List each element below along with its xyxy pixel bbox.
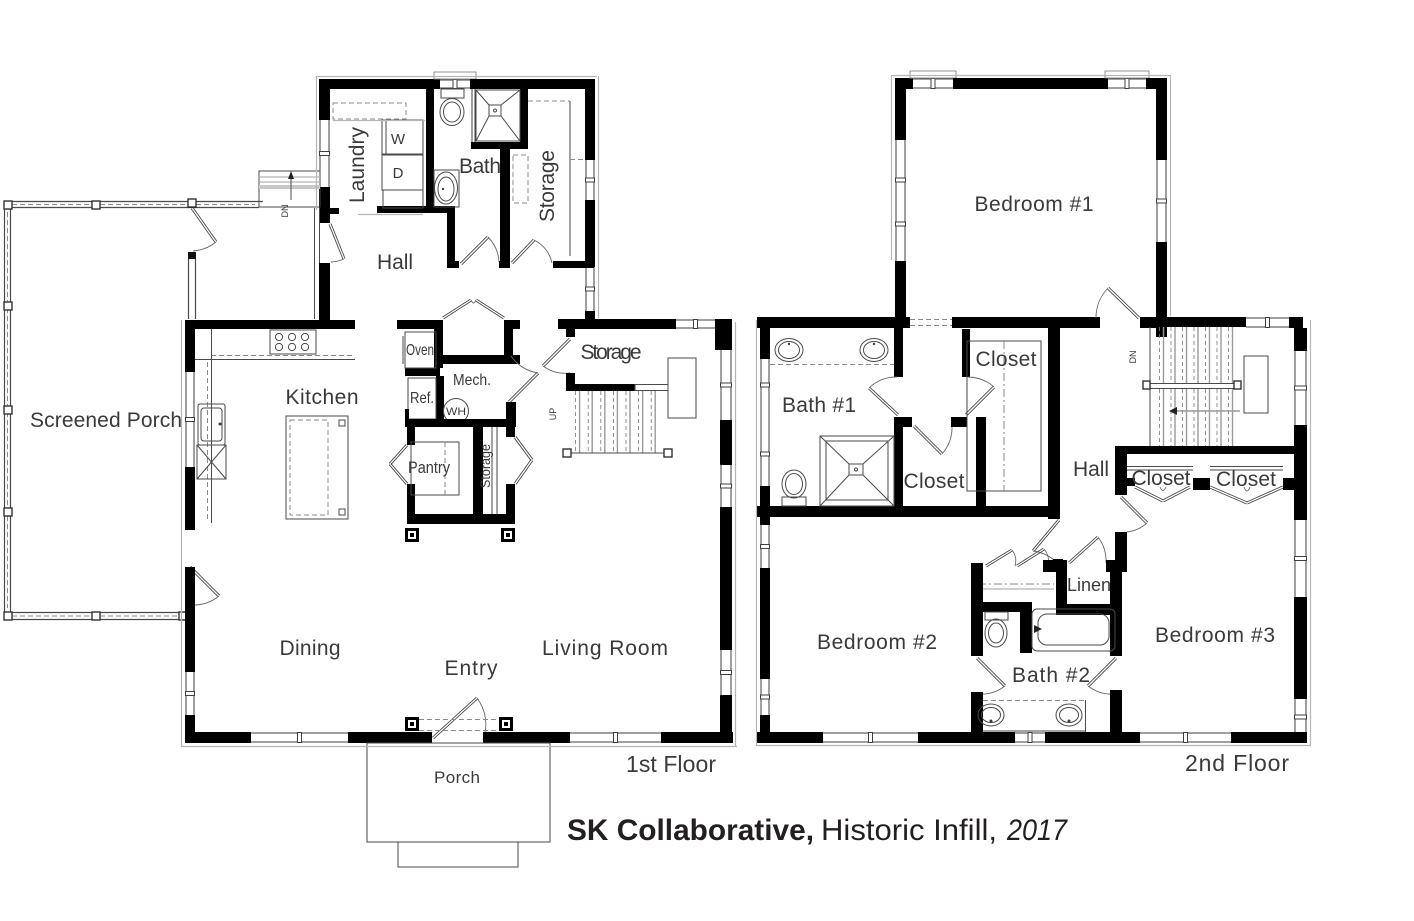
svg-text:Entry: Entry bbox=[445, 657, 499, 680]
svg-text:Storage: Storage bbox=[581, 341, 642, 364]
svg-text:Linen: Linen bbox=[1067, 575, 1111, 595]
svg-text:1st Floor: 1st Floor bbox=[626, 751, 716, 777]
svg-text:DN: DN bbox=[280, 205, 290, 218]
svg-text:Laundry: Laundry bbox=[346, 127, 369, 204]
svg-text:Closet: Closet bbox=[976, 348, 1037, 371]
svg-text:Closet: Closet bbox=[1132, 467, 1191, 490]
svg-text:Storage: Storage bbox=[477, 444, 493, 488]
svg-text:SK Collaborative,: SK Collaborative, bbox=[567, 814, 814, 847]
svg-text:Screened Porch: Screened Porch bbox=[30, 409, 182, 432]
svg-text:DN: DN bbox=[1128, 351, 1138, 364]
svg-text:Dining: Dining bbox=[280, 637, 341, 660]
svg-text:Mech.: Mech. bbox=[453, 372, 491, 389]
svg-text:Bedroom #2: Bedroom #2 bbox=[817, 631, 937, 654]
svg-text:Historic Infill,: Historic Infill, bbox=[821, 814, 997, 847]
svg-text:2nd Floor: 2nd Floor bbox=[1185, 750, 1289, 776]
svg-text:Closet: Closet bbox=[904, 470, 965, 493]
svg-text:Hall: Hall bbox=[1073, 458, 1109, 481]
svg-text:2017: 2017 bbox=[1006, 814, 1068, 847]
svg-text:W: W bbox=[391, 131, 406, 148]
svg-text:Ref.: Ref. bbox=[410, 390, 434, 407]
svg-text:UP: UP bbox=[548, 408, 558, 421]
svg-text:Kitchen: Kitchen bbox=[286, 386, 359, 409]
svg-text:Porch: Porch bbox=[434, 768, 480, 787]
svg-text:Storage: Storage bbox=[536, 150, 559, 222]
svg-text:D: D bbox=[393, 165, 404, 182]
svg-text:WH: WH bbox=[446, 406, 466, 418]
svg-text:Bath: Bath bbox=[459, 155, 501, 178]
svg-text:Bedroom #3: Bedroom #3 bbox=[1155, 624, 1275, 647]
svg-text:Living Room: Living Room bbox=[542, 637, 668, 660]
svg-text:Bath #2: Bath #2 bbox=[1012, 664, 1090, 687]
svg-text:Closet: Closet bbox=[1216, 468, 1276, 491]
svg-text:Pantry: Pantry bbox=[408, 458, 450, 477]
svg-text:Oven: Oven bbox=[406, 342, 434, 359]
svg-text:Bath #1: Bath #1 bbox=[782, 394, 856, 417]
svg-text:Bedroom #1: Bedroom #1 bbox=[975, 193, 1094, 216]
svg-text:Hall: Hall bbox=[377, 251, 413, 274]
